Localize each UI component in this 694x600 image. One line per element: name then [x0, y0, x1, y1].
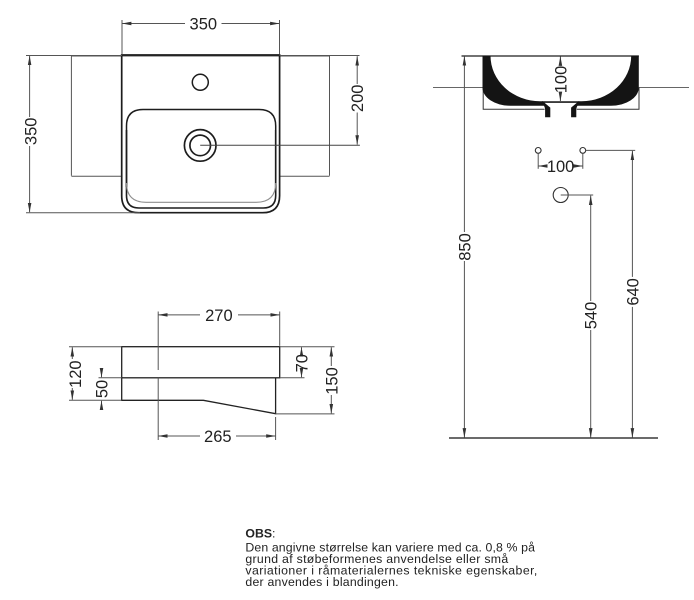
- svg-text:100: 100: [547, 158, 575, 176]
- svg-text:540: 540: [583, 302, 601, 330]
- svg-text:50: 50: [94, 380, 112, 398]
- svg-text:850: 850: [456, 233, 474, 261]
- svg-text:350: 350: [190, 16, 218, 34]
- svg-text:120: 120: [67, 360, 85, 388]
- svg-text:OBS:: OBS:: [245, 527, 275, 541]
- svg-text:350: 350: [23, 118, 41, 146]
- svg-text:640: 640: [624, 278, 642, 306]
- svg-text:150: 150: [323, 367, 341, 395]
- svg-text:270: 270: [205, 307, 233, 325]
- svg-text:100: 100: [552, 66, 570, 94]
- svg-text:der anvendes i blandingen.: der anvendes i blandingen.: [245, 575, 398, 589]
- svg-text:200: 200: [349, 85, 367, 113]
- svg-text:265: 265: [204, 428, 232, 446]
- svg-text:70: 70: [294, 354, 312, 372]
